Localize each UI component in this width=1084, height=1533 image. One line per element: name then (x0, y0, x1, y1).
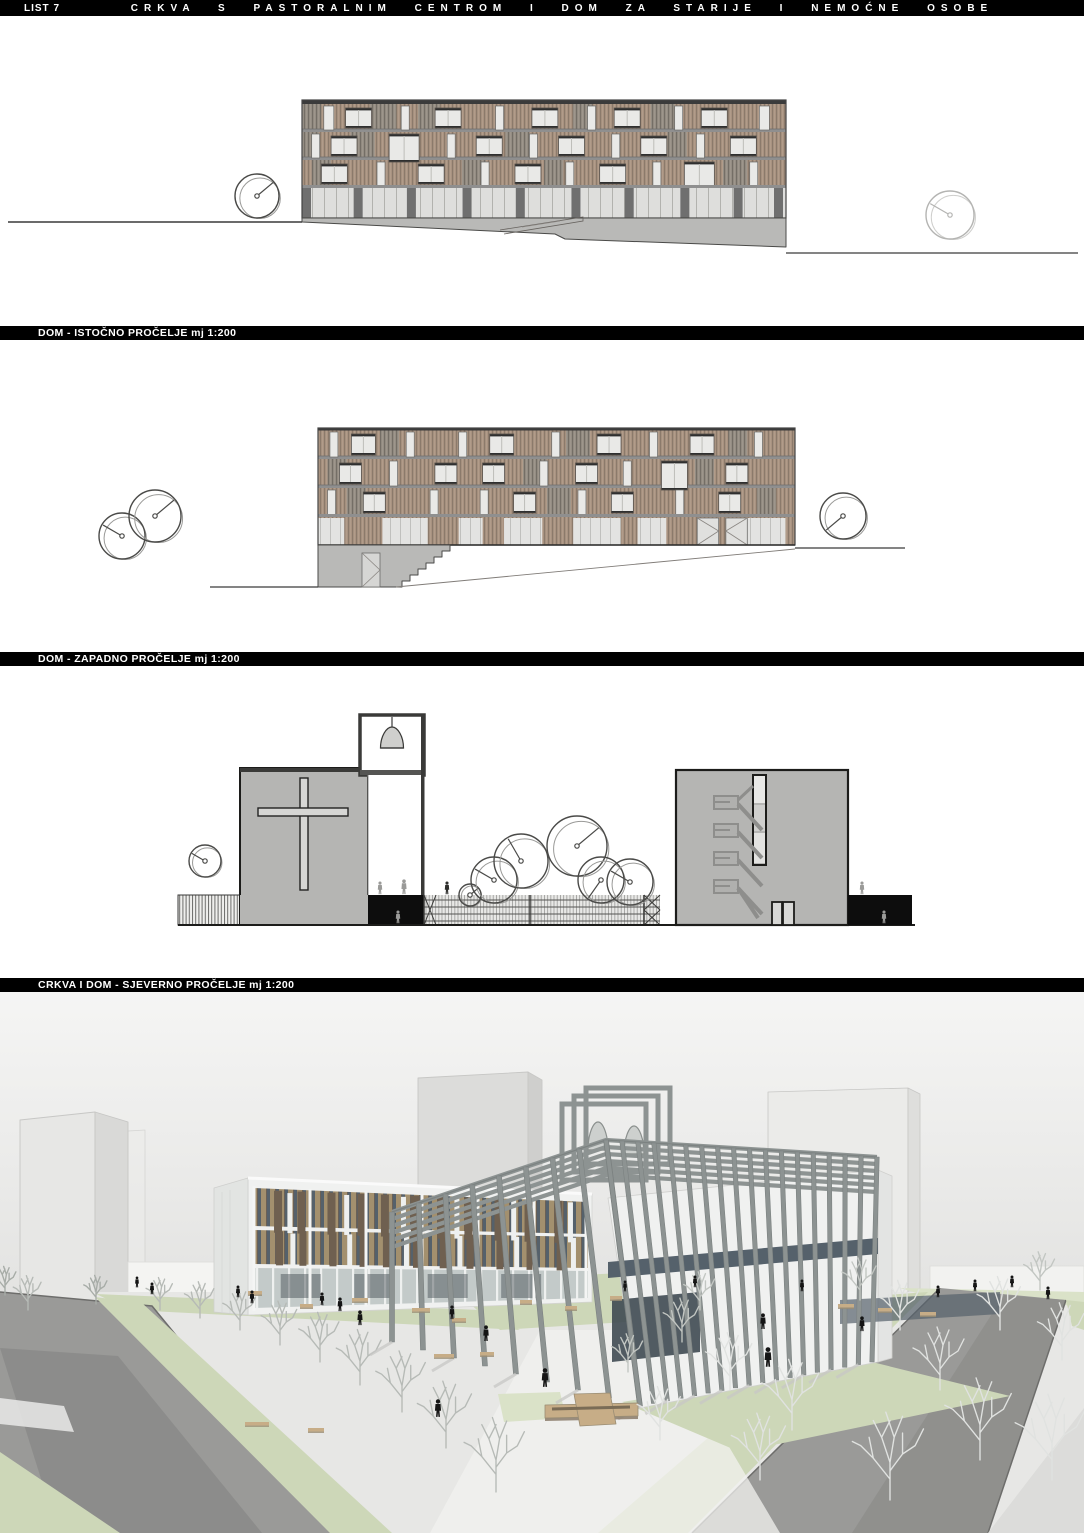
tree-sketch (189, 845, 222, 877)
section-label-west: DOM - ZAPADNO PROČELJE mj 1:200 (0, 652, 1084, 666)
section-label-text: DOM - ISTOČNO PROČELJE mj 1:200 (38, 327, 236, 339)
sheet-number: LIST 7 (24, 3, 60, 14)
section-label-text: DOM - ZAPADNO PROČELJE mj 1:200 (38, 653, 240, 665)
tree-sketch (926, 191, 975, 239)
west-elevation-drawing (0, 340, 1084, 652)
east-elevation-panel (0, 16, 1084, 326)
section-label-text: CRKVA I DOM - SJEVERNO PROČELJE mj 1:200 (38, 979, 294, 991)
west-elevation (99, 428, 905, 587)
tree-sketch (235, 174, 280, 218)
west-elevation-panel (0, 340, 1084, 652)
north-elevation-drawing (0, 666, 1084, 978)
header-bar: LIST 7 CRKVA S PASTORALNIM CENTROM I DOM… (0, 0, 1084, 16)
section-label-east: DOM - ISTOČNO PROČELJE mj 1:200 (0, 326, 1084, 340)
board-title: CRKVA S PASTORALNIM CENTROM I DOM ZA STA… (60, 3, 1064, 14)
tree-sketch (820, 493, 867, 539)
section-label-north: CRKVA I DOM - SJEVERNO PROČELJE mj 1:200 (0, 978, 1084, 992)
east-elevation (8, 100, 1078, 253)
perspective-render (0, 992, 1084, 1533)
north-elevation (178, 715, 915, 925)
tree-sketch (547, 816, 609, 877)
east-elevation-drawing (0, 16, 1084, 326)
tree-sketch (129, 490, 183, 543)
north-elevation-panel (0, 666, 1084, 978)
render-scene (0, 992, 1084, 1533)
perspective-render-panel (0, 992, 1084, 1533)
